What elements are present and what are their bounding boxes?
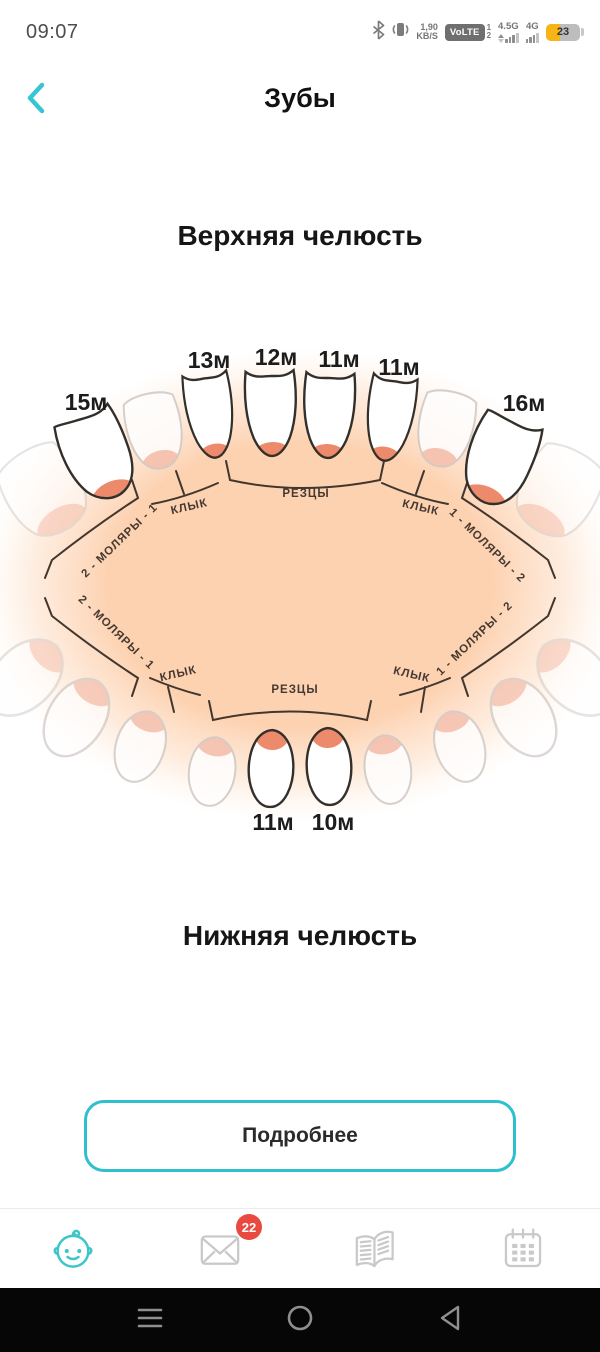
network-speed: 1,90 KB/S (416, 23, 438, 41)
volte-badge: VoLTE (445, 24, 485, 41)
teeth-diagram: 2 - МОЛЯРЫ - 1 КЛЫК РЕЗЦЫ КЛЫК 1 - МОЛЯР… (0, 330, 600, 890)
vibrate-icon (392, 20, 409, 44)
status-icons: 1,90 KB/S VoLTE 1 2 4.5G 4G (372, 20, 584, 45)
details-button[interactable]: Подробнее (84, 1100, 516, 1172)
data-arrows-icon (498, 34, 504, 43)
age-label-upper-molar-left: 15м (65, 389, 108, 415)
net1-label: 4.5G (498, 22, 519, 32)
signal-sim2: 4G (526, 22, 539, 43)
upper-jaw-heading: Верхняя челюсть (0, 220, 600, 252)
messages-badge: 22 (236, 1214, 262, 1240)
page-title: Зубы (264, 83, 336, 114)
triangle-left-icon (437, 1303, 463, 1338)
recents-button[interactable] (100, 1288, 200, 1352)
book-icon (350, 1224, 400, 1279)
age-label-upper-molar-right: 16м (503, 390, 546, 416)
signal-bars-icon (505, 33, 518, 43)
age-label-lower-central-right: 10м (312, 809, 355, 835)
tab-child-profile[interactable] (43, 1221, 103, 1281)
tab-messages[interactable]: 22 (190, 1221, 250, 1281)
clock: 09:07 (26, 21, 79, 44)
home-button[interactable] (250, 1288, 350, 1352)
back-nav-button[interactable] (400, 1288, 500, 1352)
age-label-upper-central-left: 12м (255, 344, 298, 370)
tab-bar: 22 (0, 1208, 600, 1288)
screen: 09:07 1,90 KB/S VoLTE 1 2 4.5G (0, 0, 600, 1352)
signal-bars2-icon (526, 33, 539, 43)
android-navigation-bar (0, 1288, 600, 1352)
sim2-label: 2 (487, 32, 491, 40)
age-label-upper-lateral-left: 13м (188, 347, 231, 373)
back-button[interactable] (18, 80, 54, 120)
baby-face-icon (48, 1224, 98, 1279)
speed-unit: KB/S (416, 32, 438, 41)
tab-calendar[interactable] (493, 1221, 553, 1281)
details-button-label: Подробнее (242, 1124, 358, 1148)
menu-icon (137, 1307, 163, 1334)
age-label-upper-lateral-right: 11м (378, 354, 419, 380)
calendar-icon (498, 1224, 548, 1279)
header: Зубы (0, 58, 600, 138)
chevron-left-icon (24, 81, 48, 120)
status-bar: 09:07 1,90 KB/S VoLTE 1 2 4.5G (0, 0, 600, 58)
age-label-upper-central-right: 11м (318, 346, 359, 372)
tab-guide[interactable] (345, 1221, 405, 1281)
sim-numbers: 1 2 (487, 24, 491, 40)
group-label-lower-incisors: РЕЗЦЫ (271, 684, 318, 696)
age-label-lower-central-left: 11м (252, 809, 293, 835)
circle-icon (286, 1304, 314, 1337)
battery-icon: 23 (546, 24, 584, 41)
bluetooth-icon (372, 20, 385, 45)
volte-indicator: VoLTE 1 2 (445, 24, 491, 41)
net2-label: 4G (526, 22, 539, 32)
lower-jaw-heading: Нижняя челюсть (0, 920, 600, 952)
battery-percent: 23 (546, 24, 580, 41)
signal-sim1: 4.5G (498, 22, 519, 43)
group-label-upper-incisors: РЕЗЦЫ (282, 488, 329, 500)
